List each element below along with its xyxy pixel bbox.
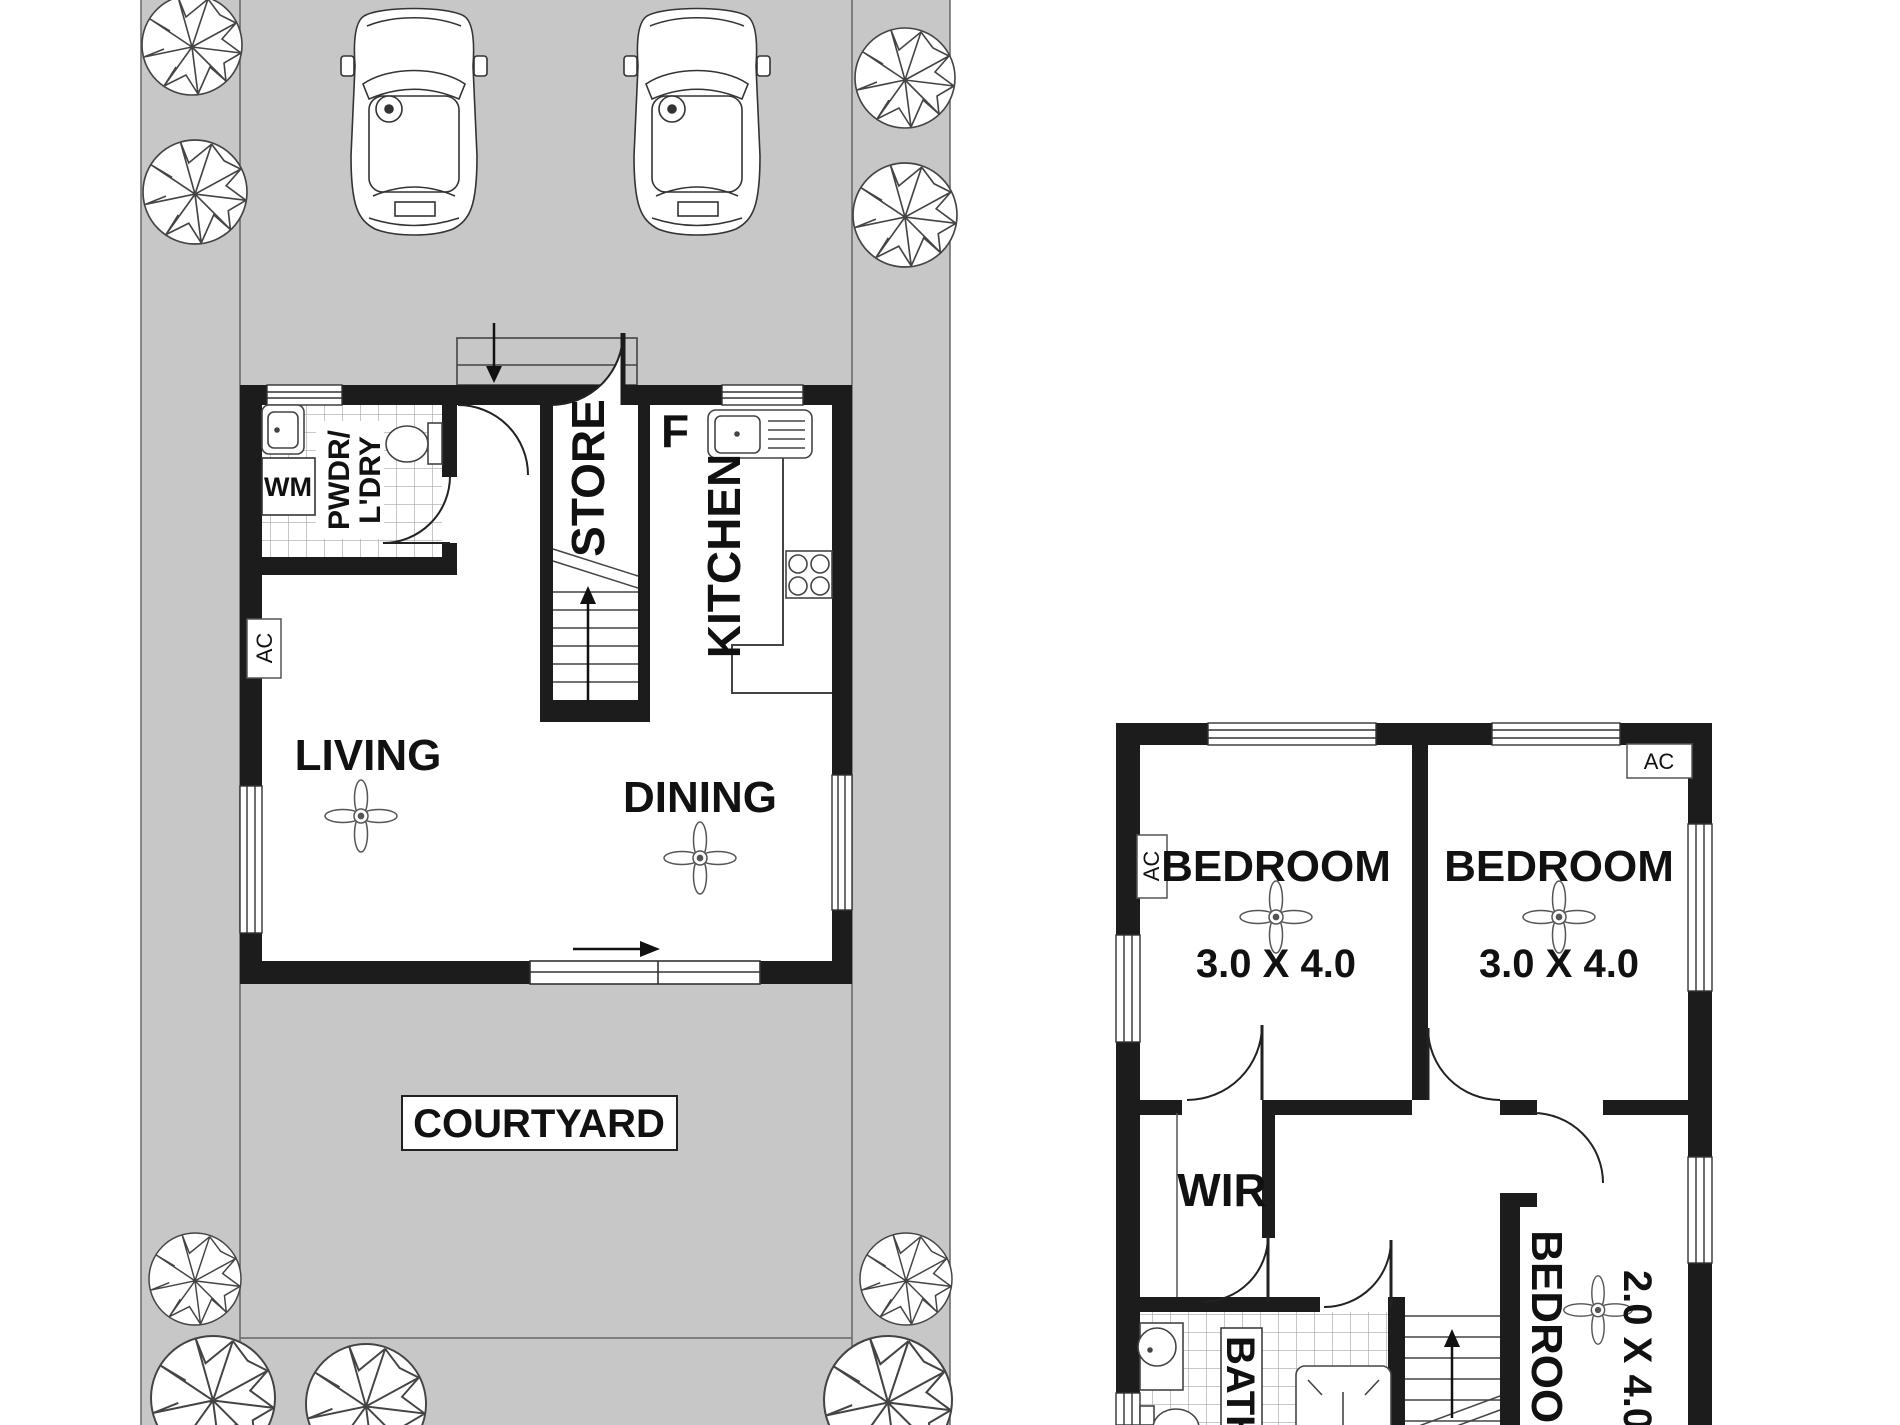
wir-label: WIR bbox=[1177, 1164, 1266, 1216]
wm-label: WM bbox=[264, 472, 312, 502]
toilet-icon bbox=[386, 423, 442, 464]
bedroom1-dim: 3.0 X 4.0 bbox=[1196, 942, 1356, 986]
fridge-label: F bbox=[661, 405, 689, 457]
bedroom2-dim: 3.0 X 4.0 bbox=[1479, 942, 1639, 986]
store-label: STORE bbox=[562, 399, 614, 557]
tree-icon bbox=[149, 1233, 241, 1325]
car-icon bbox=[624, 9, 770, 236]
stove-icon bbox=[786, 551, 832, 598]
ac-unit: AC bbox=[1627, 744, 1692, 778]
bath-vanity bbox=[1138, 1323, 1183, 1390]
bath-label-text: BATH bbox=[1218, 1336, 1262, 1425]
upper-floor-plan: AC AC BEDROOM 3.0 X 4.0 BEDROOM 3.0 X 4.… bbox=[1116, 723, 1712, 1425]
courtyard-text: COURTYARD bbox=[413, 1102, 665, 1146]
powder-label-line2: L'DRY bbox=[354, 436, 387, 524]
courtyard-label: COURTYARD bbox=[402, 1096, 677, 1150]
ac-unit: AC bbox=[247, 619, 281, 678]
kitchen-label: KITCHEN bbox=[698, 454, 750, 658]
ac-label: AC bbox=[1644, 749, 1675, 774]
floorplan-image: COURTYARD bbox=[0, 0, 1900, 1425]
tree-icon bbox=[853, 163, 957, 267]
shower-icon bbox=[1296, 1366, 1391, 1425]
bedroom3-dim: 2.0 X 4.0 bbox=[1615, 1270, 1659, 1425]
bath-label: BATH bbox=[1218, 1328, 1262, 1425]
ground-floor-plan: WM PWDR/ L'DRY AC STORE bbox=[240, 333, 852, 984]
kitchen-sink-icon bbox=[708, 410, 812, 458]
car-icon bbox=[341, 9, 487, 236]
tree-icon bbox=[143, 140, 247, 244]
laundry-sink-icon bbox=[262, 405, 304, 454]
powder-label: PWDR/ L'DRY bbox=[316, 421, 387, 539]
powder-label-line1: PWDR/ bbox=[323, 429, 356, 530]
living-label: LIVING bbox=[295, 731, 442, 780]
ac-label: AC bbox=[252, 633, 277, 664]
dining-label: DINING bbox=[623, 773, 777, 822]
washing-machine-box: WM bbox=[262, 458, 315, 515]
tree-icon bbox=[142, 0, 242, 95]
bedroom3-label: BEDROOM bbox=[1522, 1230, 1571, 1425]
tree-icon bbox=[860, 1233, 952, 1325]
tree-icon bbox=[855, 28, 955, 128]
